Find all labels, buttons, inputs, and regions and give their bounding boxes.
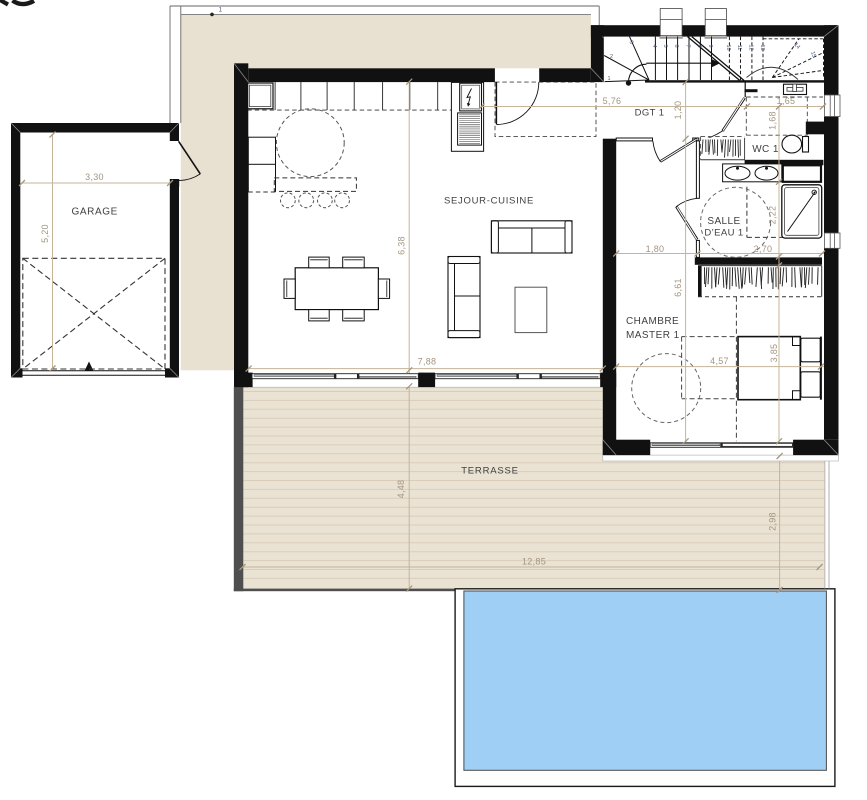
svg-text:6: 6: [673, 44, 679, 47]
svg-text:8: 8: [696, 44, 702, 47]
svg-text:WC 1: WC 1: [752, 144, 779, 155]
svg-text:6,38: 6,38: [397, 236, 407, 255]
svg-text:MASTER 1: MASTER 1: [626, 330, 680, 341]
svg-text:11: 11: [736, 45, 742, 51]
svg-text:13: 13: [759, 44, 765, 50]
svg-text:12,85: 12,85: [522, 557, 546, 567]
svg-text:DGT 1: DGT 1: [635, 108, 665, 119]
svg-text:7,88: 7,88: [418, 357, 437, 367]
svg-text:9: 9: [707, 44, 713, 47]
svg-text:4,48: 4,48: [396, 480, 406, 499]
svg-text:1: 1: [219, 7, 223, 14]
svg-text:3,85: 3,85: [769, 344, 779, 363]
svg-text:1,68: 1,68: [768, 111, 778, 130]
svg-text:2,98: 2,98: [768, 512, 778, 531]
svg-text:SEJOUR-CUISINE: SEJOUR-CUISINE: [444, 196, 534, 207]
svg-text:2,70: 2,70: [754, 244, 773, 254]
svg-text:CHAMBRE: CHAMBRE: [626, 316, 679, 327]
svg-text:D’EAU 1: D’EAU 1: [704, 228, 743, 239]
svg-text:2: 2: [610, 54, 613, 60]
svg-text:4,57: 4,57: [710, 356, 729, 366]
svg-text:7: 7: [685, 44, 691, 47]
svg-text:5,20: 5,20: [40, 224, 50, 243]
svg-text:12: 12: [748, 44, 754, 50]
svg-text:10: 10: [725, 44, 731, 50]
svg-text:1,20: 1,20: [673, 101, 683, 120]
svg-text:TERRASSE: TERRASSE: [461, 466, 519, 477]
svg-text:1,80: 1,80: [646, 244, 665, 254]
svg-text:4: 4: [651, 44, 657, 47]
svg-text:2,22: 2,22: [768, 206, 778, 225]
svg-text:1: 1: [607, 76, 610, 82]
svg-text:GARAGE: GARAGE: [72, 207, 118, 218]
svg-text:3,30: 3,30: [85, 172, 104, 182]
svg-text:5: 5: [662, 44, 668, 47]
svg-text:SALLE: SALLE: [707, 216, 740, 227]
svg-text:6,61: 6,61: [673, 278, 683, 297]
svg-text:1,65: 1,65: [777, 96, 796, 106]
svg-text:5,76: 5,76: [603, 96, 622, 106]
